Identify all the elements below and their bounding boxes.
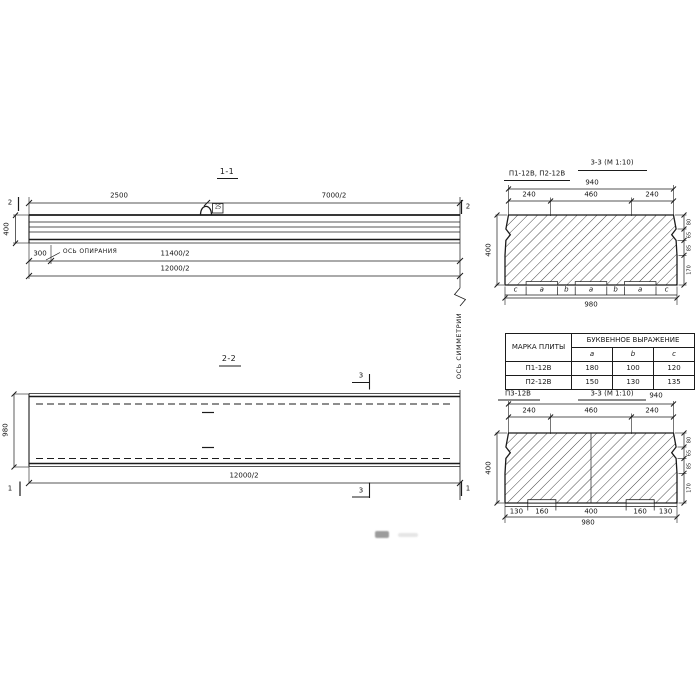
letter-dim-c2: c (665, 287, 669, 294)
cut-mark-1-right: 1 (466, 486, 470, 493)
cut-mark-2-right: 2 (466, 204, 470, 211)
dim-12000-2-plan: 12000/2 (229, 473, 258, 480)
dim-400-bottom-middle: 400 (584, 508, 597, 515)
dim-980-plan: 980 (3, 423, 10, 436)
dim-300: 300 (33, 251, 46, 258)
symmetry-axis-line (455, 197, 466, 306)
table-cell-b: 100 (613, 362, 654, 376)
dim-160-right: 160 (633, 508, 646, 515)
dim-85-bottom: 85 (687, 462, 692, 468)
dim-940-bottom: 940 (649, 393, 662, 400)
table-col-b: b (613, 348, 654, 362)
cut-mark-3-bottom: 3 (359, 488, 363, 495)
section-1-1-title: 1-1 (220, 168, 234, 176)
letter-dim-b2: b (613, 287, 617, 294)
section-2-2-linework (12, 366, 464, 500)
table-cell-mark: П1-12В (506, 362, 572, 376)
dim-7000-2: 7000/2 (322, 193, 347, 200)
dim-170-top: 170 (687, 265, 692, 275)
dim-240-left-top: 240 (522, 192, 535, 199)
table-col-c: c (654, 348, 695, 362)
lifting-loop-tag: 25 (215, 206, 221, 211)
dim-240-right-bottom: 240 (645, 408, 658, 415)
letter-dim-a1: a (540, 287, 544, 294)
dim-65-bottom: 65 (687, 450, 692, 456)
letter-values-table: МАРКА ПЛИТЫ БУКВЕННОЕ ВЫРАЖЕНИЕ a b c П1… (505, 333, 695, 390)
table-row: П2-12В 150 130 135 (506, 376, 695, 390)
dim-160-left: 160 (535, 508, 548, 515)
table-cell-c: 135 (654, 376, 695, 390)
table-header-expression: БУКВЕННОЕ ВЫРАЖЕНИЕ (572, 334, 695, 348)
section-bottom-mark-label: П3-12В (505, 391, 531, 398)
section-top-title: 3-3 (М 1:10) (590, 160, 633, 167)
table-header-mark: МАРКА ПЛИТЫ (506, 334, 572, 362)
table-cell-a: 180 (572, 362, 613, 376)
dim-980-bottom-section: 980 (581, 519, 594, 526)
dim-65-top: 65 (687, 232, 692, 238)
dim-240-right-top: 240 (645, 192, 658, 199)
dim-170-bottom: 170 (687, 483, 692, 493)
table-cell-c: 120 (654, 362, 695, 376)
dim-980-top-section: 980 (584, 301, 597, 308)
table-row: П1-12В 180 100 120 (506, 362, 695, 376)
dim-85-top: 85 (687, 244, 692, 250)
dim-11400-2: 11400/2 (160, 251, 189, 258)
cut-mark-2-left: 2 (8, 200, 12, 207)
dim-460-bottom: 460 (584, 408, 597, 415)
dim-400-top-section: 400 (486, 243, 493, 256)
faint-smudge (375, 531, 389, 538)
dim-130-right: 130 (659, 508, 672, 515)
dim-2500: 2500 (110, 193, 128, 200)
section-1-1-linework (13, 179, 463, 280)
dim-460-top: 460 (584, 192, 597, 199)
table-cell-a: 150 (572, 376, 613, 390)
support-axis-label: ОСЬ ОПИРАНИЯ (63, 249, 117, 255)
dim-130-left: 130 (510, 508, 523, 515)
section-2-2-title: 2-2 (222, 355, 236, 363)
letter-dim-b1: b (564, 287, 568, 294)
table-cell-mark: П2-12В (506, 376, 572, 390)
section-bottom-title: 3-3 (М 1:10) (590, 391, 633, 398)
letter-dim-c1: c (514, 287, 518, 294)
table-col-a: a (572, 348, 613, 362)
dim-400-elevation: 400 (4, 222, 11, 235)
letter-dim-a2: a (589, 287, 593, 294)
symmetry-axis-label: ОСЬ СИММЕТРИИ (456, 313, 463, 379)
drawing-sheet: { "sec11": { "title": "1-1", "d2500": "2… (0, 0, 700, 700)
dim-400-bottom-section: 400 (486, 461, 493, 474)
section-top-mark-label: П1-12В, П2-12В (509, 171, 565, 178)
dim-240-left-bottom: 240 (522, 408, 535, 415)
faint-smudge-light (398, 533, 418, 537)
dim-940-top: 940 (585, 180, 598, 187)
section-3-3-bottom-linework (495, 400, 687, 523)
dim-80-top: 80 (687, 218, 692, 224)
cut-mark-1-left: 1 (8, 486, 12, 493)
letter-dim-a3: a (638, 287, 642, 294)
cut-mark-3-top: 3 (359, 373, 363, 380)
table-cell-b: 130 (613, 376, 654, 390)
dim-80-bottom: 80 (687, 436, 692, 442)
dim-12000-2-elevation: 12000/2 (160, 266, 189, 273)
